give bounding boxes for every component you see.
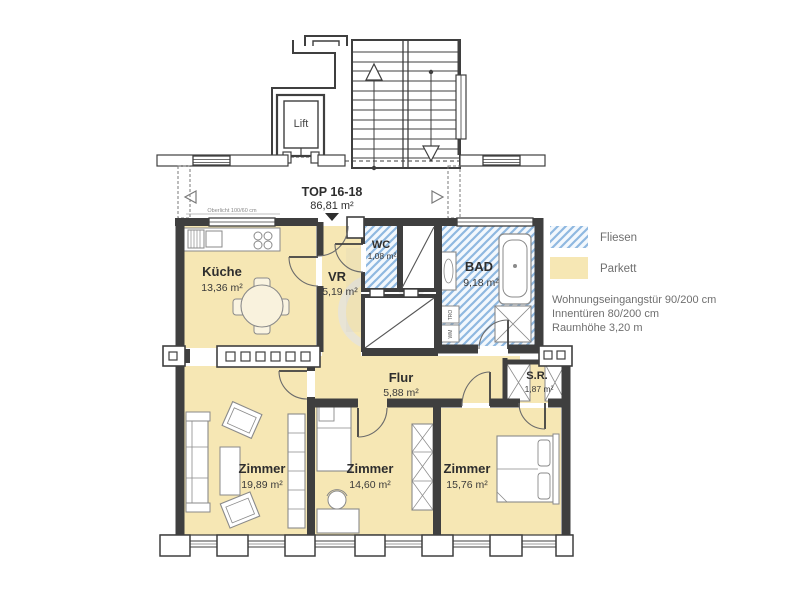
- note-entrance-door: Wohnungseingangstür 90/200 cm: [552, 294, 716, 306]
- window: [457, 218, 533, 226]
- room-area-zimmer3: 15,76 m²: [446, 479, 488, 491]
- facade-window: [483, 156, 520, 165]
- unit-area: 86,81 m²: [310, 200, 354, 212]
- room-area-bad: 9,18 m²: [463, 277, 499, 289]
- stairs-icon: [352, 40, 466, 170]
- wardrobe-icon: [412, 424, 433, 510]
- shelf-icon: [288, 414, 305, 528]
- bathtub-icon: [499, 234, 531, 304]
- unit-title: TOP 16-18: [302, 185, 363, 199]
- washing-machine-label: WM: [448, 330, 454, 339]
- washbasin-icon: [441, 252, 456, 290]
- floor-plan-canvas: TOP 16-18 86,81 m² Oberlicht 100/60 cm L…: [0, 0, 800, 600]
- room-label-zimmer3: Zimmer: [444, 461, 491, 476]
- entrance-arrow-icon: [325, 213, 339, 221]
- roof-bracket-inner: [313, 41, 339, 46]
- legend-label-fliesen: Fliesen: [600, 232, 637, 244]
- legend-swatch-fliesen: [550, 226, 588, 248]
- facade-window: [193, 156, 230, 165]
- room-area-zimmer2: 14,60 m²: [349, 479, 391, 491]
- legend: Fliesen Parkett Wohnungseingangstür 90/2…: [550, 226, 716, 334]
- room-label-wc: WC: [372, 239, 390, 251]
- note-inner-doors: Innentüren 80/200 cm: [552, 308, 659, 320]
- chair-icon: [328, 491, 346, 509]
- sink-icon: [206, 231, 222, 247]
- kitchen-counter: [184, 228, 280, 251]
- window: [209, 218, 275, 226]
- chimney-block: [217, 346, 320, 367]
- room-label-bad: BAD: [465, 259, 493, 274]
- room-label-kueche: Küche: [202, 264, 242, 279]
- lift-label: Lift: [294, 118, 309, 130]
- room-area-wc: 1,08 m²: [368, 251, 397, 261]
- room-area-vr: 5,19 m²: [322, 286, 358, 298]
- legend-swatch-parkett: [550, 257, 588, 279]
- chimney-block: [163, 346, 185, 366]
- note-room-height: Raumhöhe 3,20 m: [552, 322, 643, 334]
- room-area-kueche: 13,36 m²: [201, 282, 243, 294]
- double-bed-icon: [497, 434, 559, 504]
- chimney-block: [539, 346, 572, 366]
- room-area-sr: 1,87 m²: [525, 384, 554, 394]
- legend-label-parkett: Parkett: [600, 263, 637, 275]
- direction-arrow-right-icon: [432, 191, 443, 203]
- room-area-flur: 5,88 m²: [383, 387, 419, 399]
- dryer-label: TRO: [448, 310, 454, 321]
- bottom-facade: [160, 535, 573, 556]
- floor-plan-page: TOP 16-18 86,81 m² Oberlicht 100/60 cm L…: [0, 0, 800, 600]
- sofa-icon: [186, 412, 210, 512]
- room-area-zimmer1: 19,89 m²: [241, 479, 283, 491]
- shower-icon: [495, 306, 531, 342]
- room-label-zimmer2: Zimmer: [347, 461, 394, 476]
- room-label-vr: VR: [328, 269, 347, 284]
- room-label-sr: S.R.: [526, 370, 547, 382]
- oberlicht-note: Oberlicht 100/60 cm: [207, 208, 257, 214]
- room-label-flur: Flur: [389, 370, 414, 385]
- table-icon: [220, 447, 240, 495]
- room-label-zimmer1: Zimmer: [239, 461, 286, 476]
- drainer-icon: [188, 230, 204, 248]
